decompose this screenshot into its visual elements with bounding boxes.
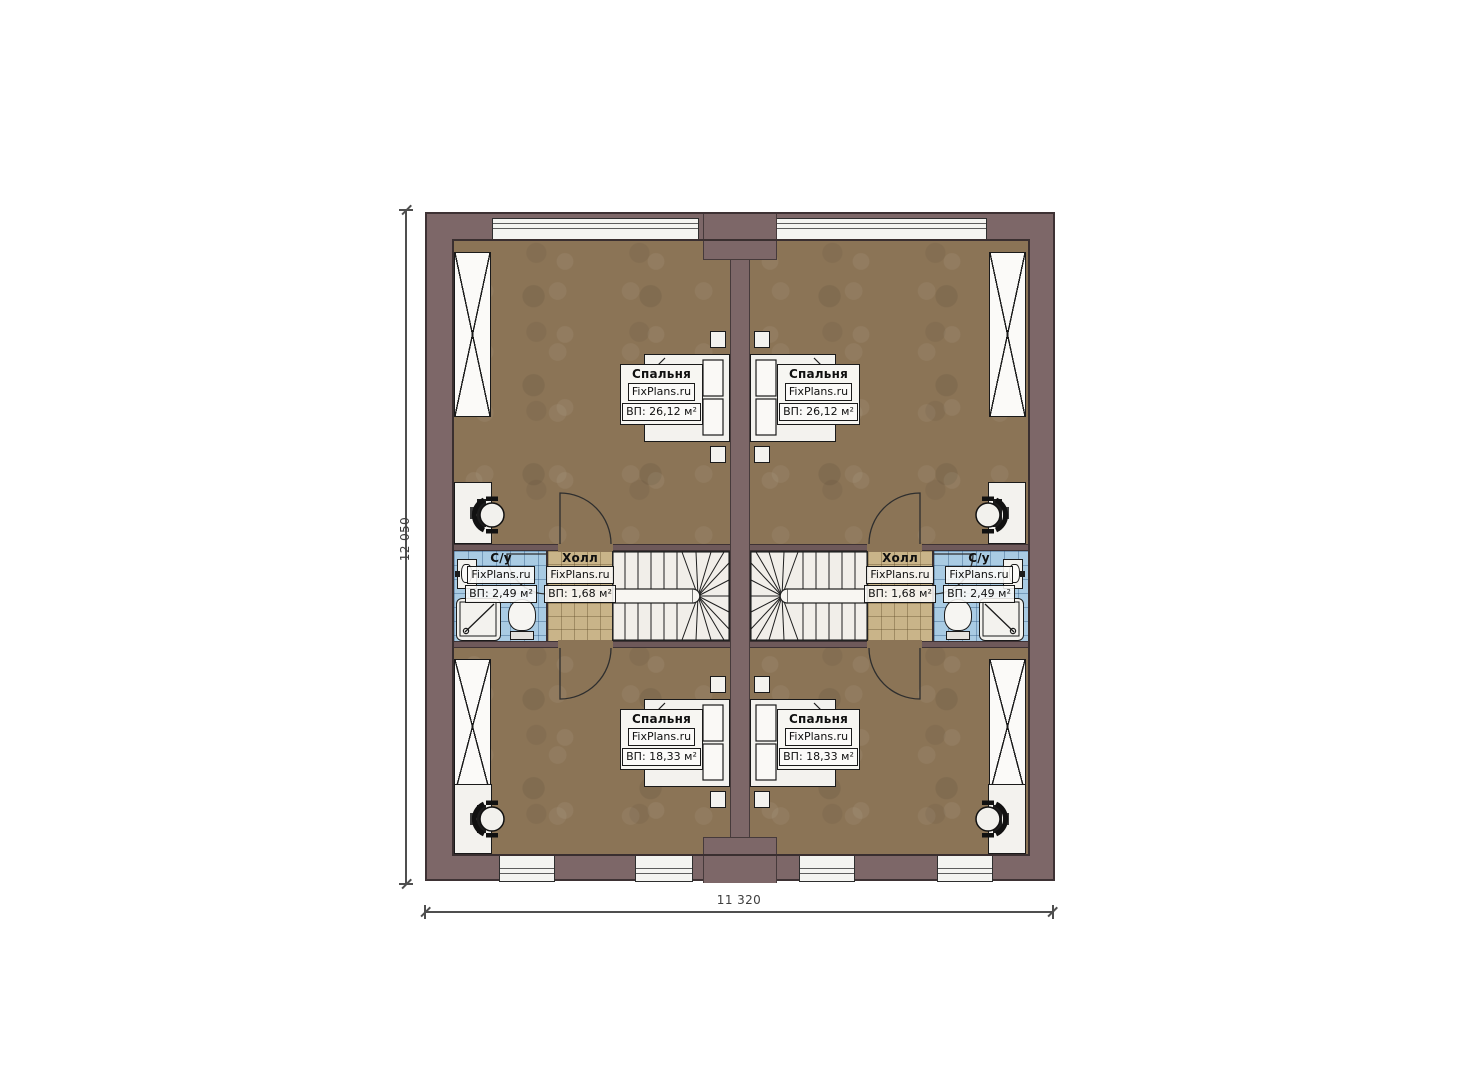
toilet-icon [507,599,537,641]
toilet-tank [946,631,970,640]
room-area: ВП: 2,49 м² [943,585,1015,603]
room-area: ВП: 18,33 м² [622,748,701,766]
window-bottom [499,854,555,882]
room-label-bedroom-bottom-right: Спальня FixPlans.ru ВП: 18,33 м² [777,709,860,770]
dimension-vertical: 12 050 [380,200,430,900]
room-area: ВП: 2,49 м² [465,585,537,603]
dimension-label-height: 12 050 [397,504,413,574]
wardrobe-icon [989,252,1026,417]
dimension-horizontal: 11 320 [415,885,1065,930]
toilet-tank [510,631,534,640]
office-chair-icon [971,799,1011,839]
door-opening [867,640,922,649]
room-area: ВП: 18,33 м² [779,748,858,766]
room-name: Холл [562,552,598,565]
nightstand-icon [754,446,770,463]
dimension-label-width: 11 320 [689,893,789,907]
room-name: С/у [490,552,512,565]
brand-watermark: FixPlans.ru [467,566,534,584]
window-band-top-left [492,218,699,241]
room-label-hall-right: Холл FixPlans.ru ВП: 1,68 м² [865,552,935,603]
building-outline: Спальня FixPlans.ru ВП: 26,12 м² Спальня… [425,212,1055,881]
brand-watermark: FixPlans.ru [785,383,852,401]
room-name: Спальня [789,713,848,726]
room-label-bathroom-left: С/у FixPlans.ru ВП: 2,49 м² [451,552,551,603]
shower-icon [979,598,1024,641]
party-wall-pier-top [703,214,777,260]
room-name: Спальня [632,368,691,381]
brand-watermark: FixPlans.ru [628,383,695,401]
door-opening [558,640,613,649]
room-label-bedroom-top-left: Спальня FixPlans.ru ВП: 26,12 м² [620,364,703,425]
nightstand-icon [754,331,770,348]
room-area: ВП: 26,12 м² [779,403,858,421]
window-bottom [799,854,855,882]
nightstand-icon [754,791,770,808]
window-bottom [937,854,993,882]
window-bottom [635,854,693,882]
brand-watermark: FixPlans.ru [546,566,613,584]
brand-watermark: FixPlans.ru [945,566,1012,584]
wardrobe-icon [989,659,1026,794]
staircase-icon [612,551,730,641]
staircase-right [750,551,868,641]
room-name: Холл [882,552,918,565]
party-wall [730,214,750,883]
party-wall-pier-bottom [703,837,777,883]
wardrobe-icon [454,252,491,417]
room-name: С/у [968,552,990,565]
nightstand-icon [710,331,726,348]
room-area: ВП: 1,68 м² [864,585,936,603]
room-name: Спальня [632,713,691,726]
room-label-hall-left: Холл FixPlans.ru ВП: 1,68 м² [545,552,615,603]
office-chair-icon [469,799,509,839]
nightstand-icon [710,676,726,693]
brand-watermark: FixPlans.ru [785,728,852,746]
room-label-bedroom-bottom-left: Спальня FixPlans.ru ВП: 18,33 м² [620,709,703,770]
office-chair-icon [971,495,1011,535]
room-name: Спальня [789,368,848,381]
office-chair-icon [469,495,509,535]
window-band-top-right [770,218,987,241]
nightstand-icon [754,676,770,693]
room-area: ВП: 1,68 м² [544,585,616,603]
room-area: ВП: 26,12 м² [622,403,701,421]
wardrobe-icon [454,659,491,794]
room-label-bedroom-top-right: Спальня FixPlans.ru ВП: 26,12 м² [777,364,860,425]
toilet-bowl [508,599,536,631]
dimension-line [425,911,1053,913]
room-label-bathroom-right: С/у FixPlans.ru ВП: 2,49 м² [929,552,1029,603]
nightstand-icon [710,446,726,463]
shower-icon [456,598,501,641]
toilet-icon [943,599,973,641]
floor-plan-page: 12 050 11 320 [0,0,1473,1080]
nightstand-icon [710,791,726,808]
brand-watermark: FixPlans.ru [628,728,695,746]
brand-watermark: FixPlans.ru [866,566,933,584]
staircase-icon [750,551,868,641]
staircase-left [612,551,730,641]
toilet-bowl [944,599,972,631]
